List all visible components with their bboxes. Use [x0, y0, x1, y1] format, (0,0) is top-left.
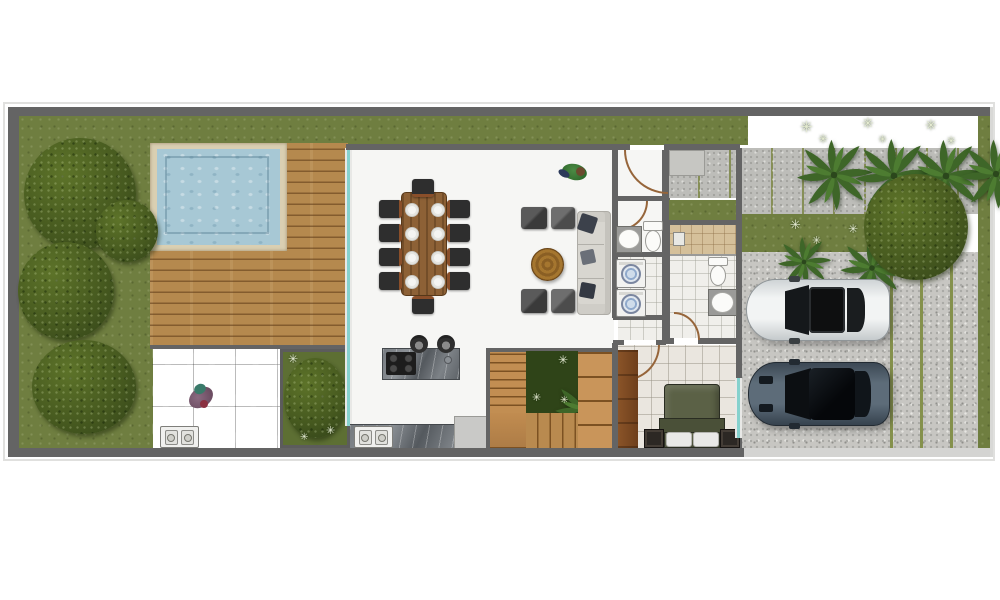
car-rear-glass — [847, 288, 865, 332]
dining-chair — [379, 248, 402, 266]
top-lawn-strip — [150, 115, 748, 145]
place-setting — [405, 203, 419, 217]
sofa-cushion-line — [578, 244, 604, 245]
bar-stool — [437, 335, 455, 353]
dining-chair — [379, 200, 402, 218]
palm-tree-icon — [916, 94, 996, 174]
washing-machine — [616, 259, 646, 288]
dining-chair — [447, 272, 470, 290]
place-setting — [431, 275, 445, 289]
lounge-pouf — [521, 289, 547, 313]
ac-unit — [160, 426, 199, 448]
place-setting — [431, 251, 445, 265]
bathroom-toilet — [708, 257, 726, 287]
bar-stool — [410, 335, 428, 353]
pool-inner-step-line — [165, 156, 269, 234]
kitchen-appliance — [454, 416, 488, 450]
person-on-patio — [184, 380, 220, 418]
car-mirror — [789, 276, 800, 282]
house-top-wall — [346, 144, 630, 150]
place-setting — [405, 251, 419, 265]
sofa-cushion-line — [578, 278, 604, 279]
round-tree — [864, 174, 968, 280]
car-windshield — [785, 284, 809, 336]
place-setting — [405, 275, 419, 289]
island-faucet — [444, 356, 452, 364]
car-hood-vent — [759, 404, 773, 412]
driveway-joint — [950, 252, 953, 448]
sofa-pillow — [579, 282, 596, 299]
bed-fold — [659, 418, 725, 433]
washing-machine — [616, 289, 646, 317]
palm-tree-icon — [802, 198, 872, 268]
sofa-pillow — [580, 249, 597, 266]
bed-pillow — [666, 432, 692, 447]
car-hood-vent — [759, 376, 773, 384]
dining-chair — [412, 179, 434, 197]
dining-chair — [447, 200, 470, 218]
place-setting — [431, 227, 445, 241]
dining-chair — [447, 224, 470, 242]
stair-planter: ✳ ✳ ✳ — [526, 351, 578, 413]
car-white — [746, 279, 890, 341]
hallway-floor — [618, 320, 662, 340]
bathroom-washbasin — [711, 292, 734, 313]
bed-pillow — [693, 432, 719, 447]
garden-shrub — [18, 242, 114, 340]
lounge-pouf — [551, 289, 575, 313]
west-window-wall — [345, 148, 352, 426]
stair-landing-center — [526, 413, 578, 448]
wardrobe — [618, 350, 638, 448]
dining-chair — [379, 224, 402, 242]
site-wall-bottom — [8, 448, 744, 457]
lounge-pouf — [521, 207, 547, 229]
shower-fixture — [673, 232, 685, 246]
site-wall-left — [8, 107, 19, 457]
powder-toilet — [643, 221, 661, 253]
place-setting — [405, 227, 419, 241]
car-roof-glass — [809, 368, 855, 420]
driveway-curb — [742, 448, 992, 457]
dining-chair — [447, 248, 470, 266]
palm-tree-icon — [746, 204, 804, 262]
garden-shrub — [96, 200, 158, 262]
driveway-joint — [920, 252, 923, 448]
lounge-pouf — [551, 207, 575, 229]
dining-chair — [379, 272, 402, 290]
car-dark — [748, 362, 890, 426]
bath-bottom-wall-b — [698, 338, 740, 344]
car-mirror — [789, 359, 800, 365]
stair-flight-right — [578, 352, 612, 448]
nightstand — [644, 429, 664, 448]
bath-bottom-wall-a — [666, 338, 674, 344]
car-mirror — [789, 338, 800, 344]
car-windshield — [785, 367, 811, 421]
porch-grass-strip — [669, 200, 736, 220]
stair-landing-left — [490, 413, 526, 448]
gas-hob — [386, 352, 416, 375]
planting-bed-shrub — [284, 358, 346, 438]
dining-chair — [412, 296, 434, 314]
car-sunroof — [809, 287, 845, 333]
floor-plan-canvas: ✳ ✳ ✳ — [0, 0, 1000, 600]
car-rear-glass — [855, 371, 871, 417]
porch-step — [669, 150, 705, 176]
powder-washbasin — [618, 229, 640, 249]
garden-shrub — [32, 340, 136, 434]
kitchen-double-sink — [354, 426, 393, 448]
person-near-entry — [558, 158, 594, 188]
place-setting — [431, 203, 445, 217]
coffee-table — [531, 248, 564, 281]
car-mirror — [789, 423, 800, 429]
bedroom-window — [735, 378, 742, 438]
